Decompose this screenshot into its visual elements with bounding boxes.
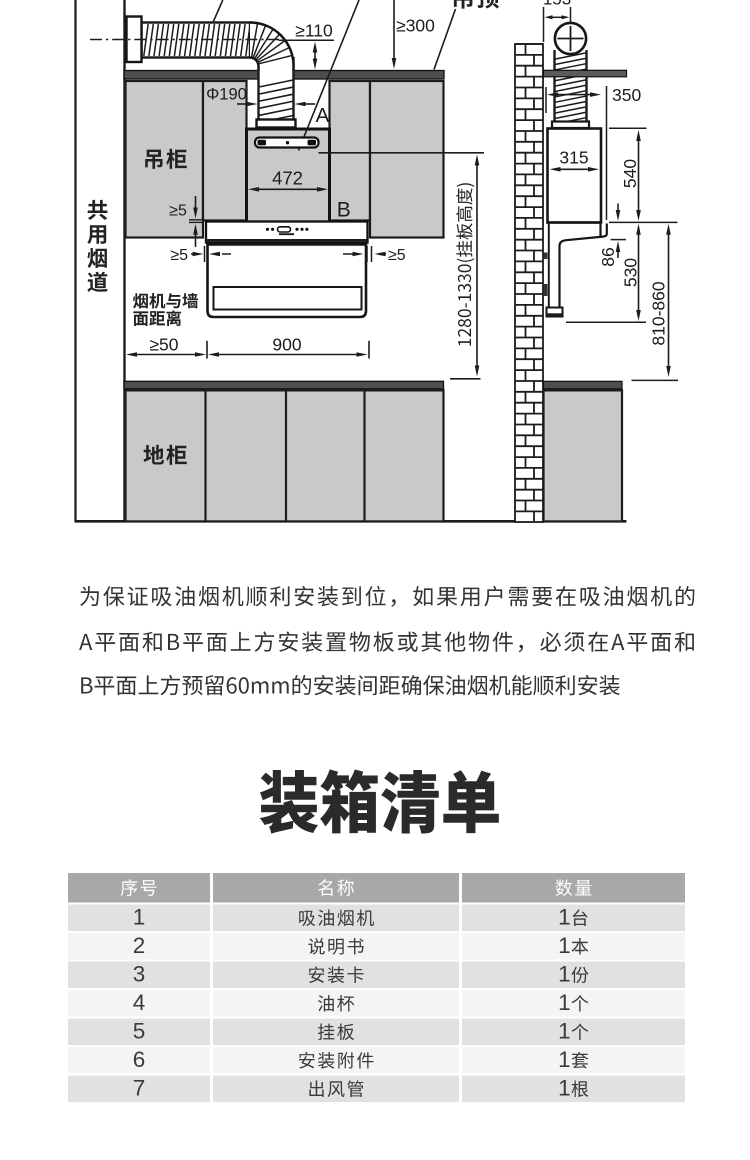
svg-text:153: 153 (543, 0, 571, 9)
svg-text:5: 5 (133, 1019, 146, 1044)
svg-text:472: 472 (272, 168, 303, 189)
svg-text:530: 530 (621, 258, 641, 287)
svg-text:2: 2 (133, 933, 146, 958)
svg-text:540: 540 (620, 159, 640, 188)
svg-text:6: 6 (133, 1047, 146, 1072)
svg-text:1: 1 (558, 905, 571, 930)
svg-text:350: 350 (612, 85, 641, 105)
svg-text:≥50: ≥50 (149, 335, 178, 355)
svg-text:1: 1 (558, 1019, 571, 1044)
svg-text:810-860: 810-860 (649, 281, 669, 345)
svg-text:3: 3 (133, 962, 146, 987)
svg-text:≥5: ≥5 (170, 247, 188, 264)
svg-text:1: 1 (558, 962, 571, 987)
svg-text:86: 86 (598, 247, 618, 266)
svg-text:≥5: ≥5 (169, 203, 187, 220)
svg-text:1: 1 (133, 905, 146, 930)
svg-text:900: 900 (272, 335, 301, 355)
svg-text:1: 1 (558, 1047, 571, 1072)
svg-text:A: A (316, 104, 330, 127)
svg-text:Φ190: Φ190 (206, 86, 247, 104)
svg-text:4: 4 (133, 990, 146, 1015)
svg-text:7: 7 (133, 1076, 146, 1101)
svg-text:≥110: ≥110 (295, 21, 333, 41)
svg-text:B: B (337, 199, 351, 222)
svg-text:≥5: ≥5 (388, 247, 406, 264)
svg-text:≥300: ≥300 (396, 16, 435, 36)
svg-text:1: 1 (558, 990, 571, 1015)
svg-text:1: 1 (558, 1076, 571, 1101)
svg-text:315: 315 (559, 148, 588, 168)
svg-text:1: 1 (558, 933, 571, 958)
